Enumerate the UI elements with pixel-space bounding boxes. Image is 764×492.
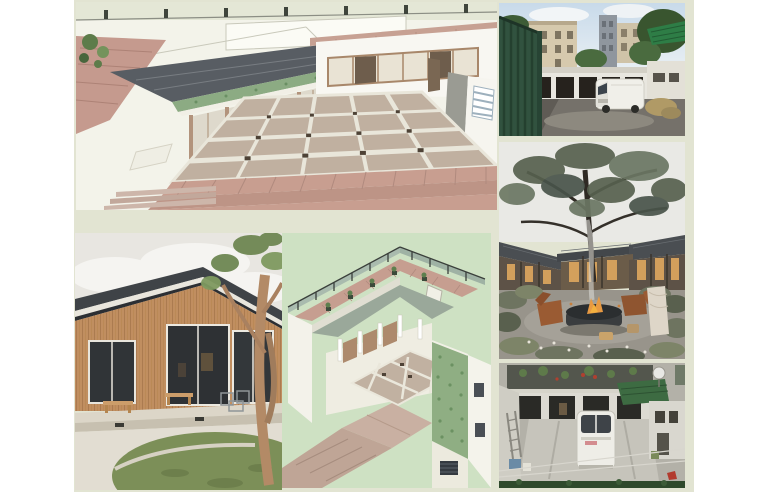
axon-render-scene: [282, 233, 491, 488]
image-axon-render: [282, 233, 491, 488]
image-courtyard-render: [76, 2, 497, 210]
hedge-strip: [499, 481, 685, 488]
green-wall: [432, 341, 468, 459]
firepit-scene: [499, 142, 685, 359]
image-firepit-photo: [499, 142, 685, 359]
white-van-rear: [577, 411, 615, 469]
garages-scene: [499, 3, 685, 136]
green-gate: [499, 17, 542, 136]
side-stool: [599, 332, 613, 340]
courtyard-render-scene: [76, 2, 497, 210]
blue-cart: [509, 459, 521, 469]
image-aerial-photo: [499, 363, 685, 488]
image-timber-house-photo: [75, 233, 282, 490]
image-garages-photo: [499, 3, 685, 136]
garden: [75, 423, 282, 490]
collage-page: [0, 0, 764, 492]
white-outbuilding: [647, 61, 685, 105]
van-logo: [585, 441, 597, 445]
white-van: [596, 79, 644, 113]
timber-house-scene: [75, 233, 282, 490]
glass-canopy-edge: [76, 2, 497, 20]
aerial-scene: [499, 363, 685, 488]
